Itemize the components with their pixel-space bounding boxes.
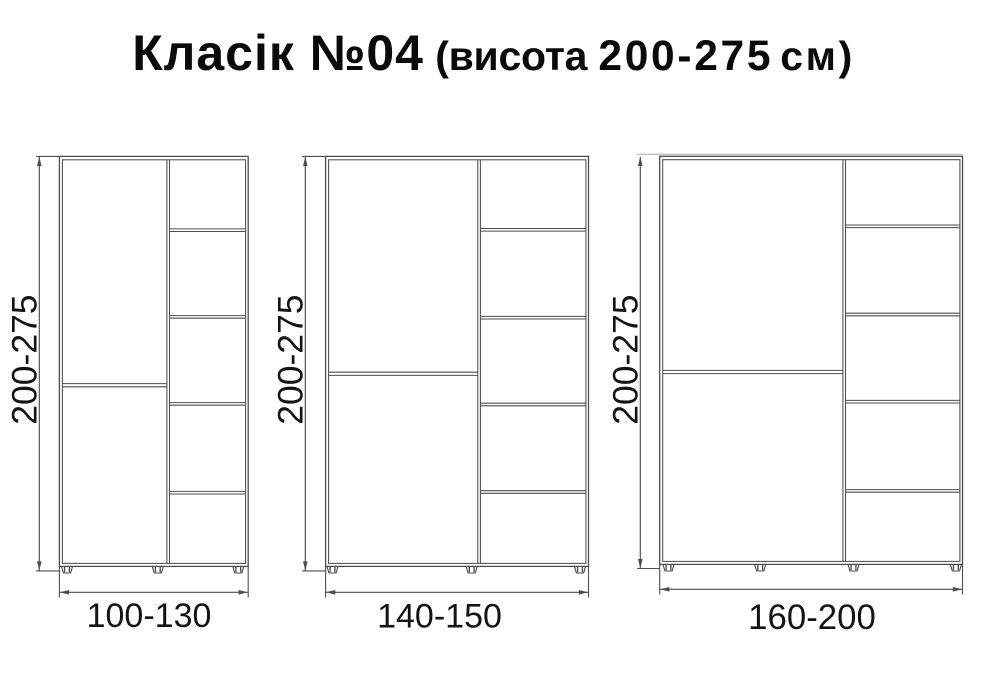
svg-text:100-130: 100-130 bbox=[87, 597, 212, 635]
svg-text:140-150: 140-150 bbox=[377, 598, 502, 636]
svg-text:160-200: 160-200 bbox=[748, 598, 876, 637]
svg-text:200-275: 200-275 bbox=[605, 294, 645, 424]
svg-text:200-275: 200-275 bbox=[4, 294, 44, 424]
svg-text:Класік №04: Класік №04 bbox=[132, 25, 424, 81]
svg-text:(висота 200-275 см): (висота 200-275 см) bbox=[435, 33, 855, 80]
svg-text:200-275: 200-275 bbox=[270, 294, 310, 424]
